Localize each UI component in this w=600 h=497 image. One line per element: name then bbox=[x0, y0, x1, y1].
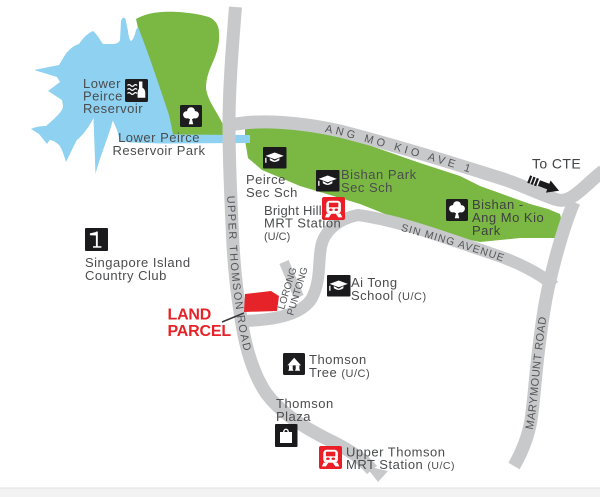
svg-text:School (U/C): School (U/C) bbox=[351, 288, 427, 303]
svg-text:MRT Station: MRT Station bbox=[264, 216, 341, 231]
svg-text:Sec Sch: Sec Sch bbox=[341, 180, 393, 195]
svg-text:LAND: LAND bbox=[168, 307, 212, 324]
svg-text:Sec Sch: Sec Sch bbox=[246, 185, 298, 200]
svg-text:(U/C): (U/C) bbox=[264, 231, 290, 243]
svg-text:Tree (U/C): Tree (U/C) bbox=[309, 365, 370, 380]
svg-text:Country Club: Country Club bbox=[85, 268, 167, 283]
svg-text:Plaza: Plaza bbox=[276, 409, 311, 424]
svg-text:To CTE: To CTE bbox=[532, 156, 581, 172]
svg-text:MRT Station (U/C): MRT Station (U/C) bbox=[346, 457, 455, 472]
svg-text:Park: Park bbox=[472, 223, 501, 238]
svg-text:Reservoir: Reservoir bbox=[83, 101, 143, 116]
svg-text:Reservoir Park: Reservoir Park bbox=[113, 143, 206, 158]
svg-text:PARCEL: PARCEL bbox=[168, 323, 232, 340]
